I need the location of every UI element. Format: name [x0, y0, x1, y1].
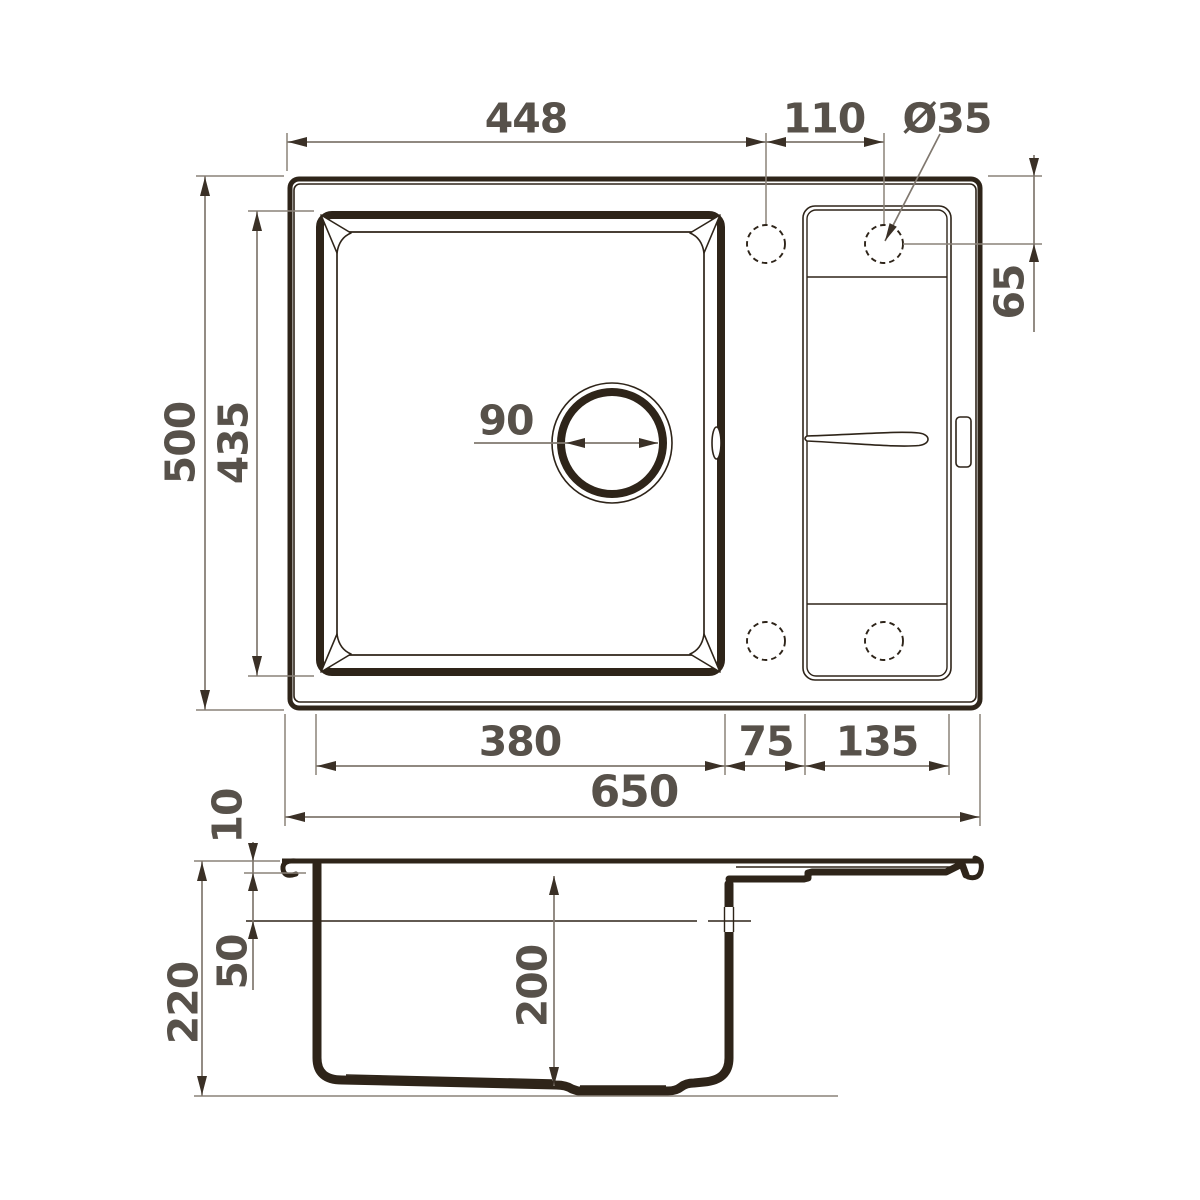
dim-10-label: 10 — [203, 788, 251, 843]
side-view — [246, 858, 981, 1091]
dim-110-label: 110 — [783, 94, 866, 142]
bowl-corner-chamfer-tr — [690, 215, 720, 253]
tap-hole-top-left — [747, 225, 785, 263]
dim-435-label: 435 — [209, 402, 257, 485]
dim-220-label: 220 — [159, 962, 207, 1045]
section-overflow-gap — [721, 907, 737, 932]
dim-650-label: 650 — [590, 766, 679, 817]
tap-hole-bottom-right — [865, 622, 903, 660]
dim-220: 220 — [159, 861, 207, 1096]
sink-technical-drawing: 448 110 Ø35 65 500 435 — [0, 0, 1200, 1200]
dim-90-label: 90 — [478, 396, 533, 444]
dim-200-label: 200 — [508, 945, 556, 1028]
bowl-corner-chamfer-tl — [321, 215, 351, 253]
dim-75-label: 75 — [738, 717, 793, 765]
drainboard-groove — [805, 432, 928, 446]
dim-448-110: 448 110 — [287, 94, 884, 147]
dim-35-label: Ø35 — [903, 94, 992, 142]
bowl-corner-chamfer-br — [690, 634, 720, 672]
tap-hole-top-right — [865, 225, 903, 263]
dim-50-label: 50 — [208, 934, 256, 989]
drawing-svg: 448 110 Ø35 65 500 435 — [0, 0, 1200, 1200]
dim-10-50: 10 50 — [203, 788, 258, 990]
side-view-dimensions: 10 50 220 200 — [159, 788, 838, 1096]
dim-380-label: 380 — [479, 717, 562, 765]
dim-650: 650 — [285, 766, 980, 822]
dim-435: 435 — [209, 211, 262, 676]
dim-500: 500 — [156, 176, 210, 710]
edge-handle-slot — [956, 417, 971, 467]
dim-500-label: 500 — [156, 402, 204, 485]
dim-380-75-135: 380 75 135 — [316, 717, 949, 771]
tap-hole-bottom-left — [747, 622, 785, 660]
bowl-corner-chamfer-bl — [321, 634, 351, 672]
dim-65-label: 65 — [985, 264, 1033, 319]
dim-448-label: 448 — [485, 94, 568, 142]
overflow-slot — [712, 427, 721, 459]
dim-135-label: 135 — [836, 717, 919, 765]
dim-200: 200 — [508, 876, 559, 1086]
